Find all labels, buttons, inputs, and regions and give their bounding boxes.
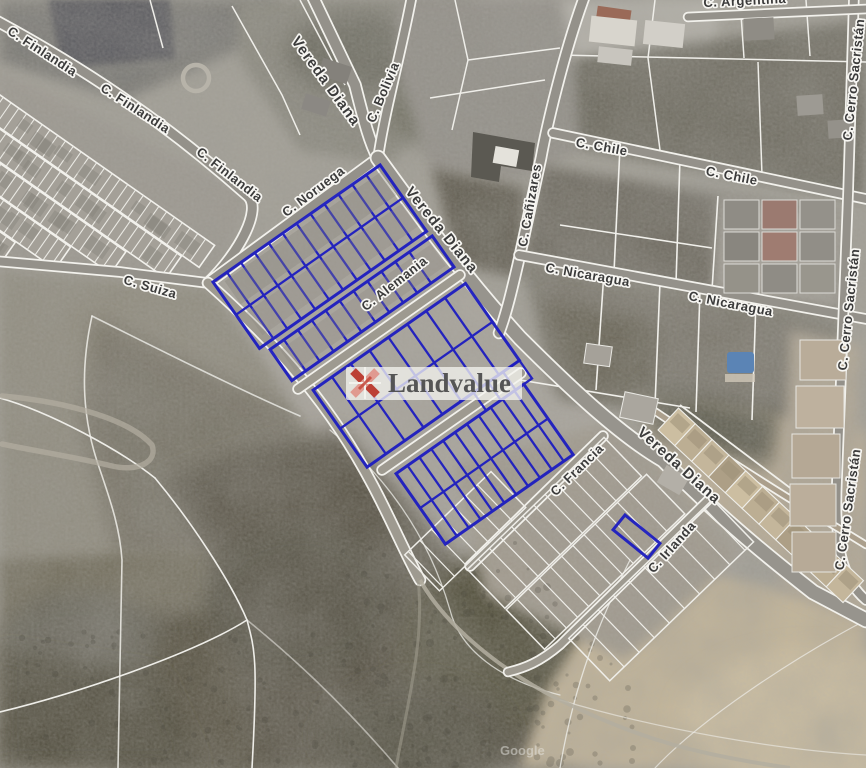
svg-text:Landvalue: Landvalue: [388, 368, 511, 398]
svg-text:Google: Google: [500, 743, 545, 758]
